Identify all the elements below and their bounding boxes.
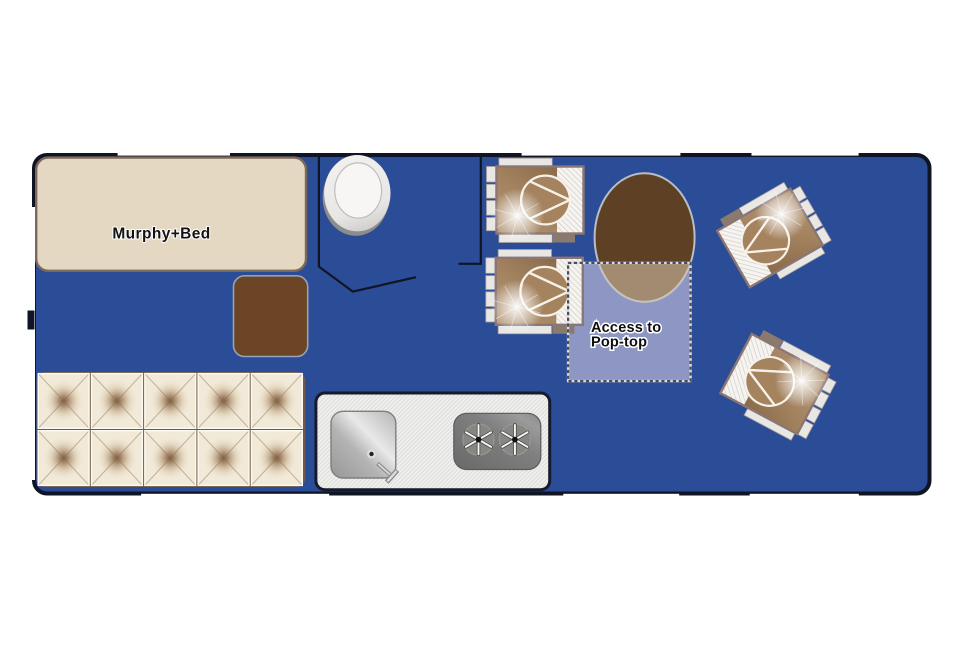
svg-text:Pop-top: Pop-top xyxy=(591,335,647,351)
svg-text:Murphy+Bed: Murphy+Bed xyxy=(112,226,210,243)
